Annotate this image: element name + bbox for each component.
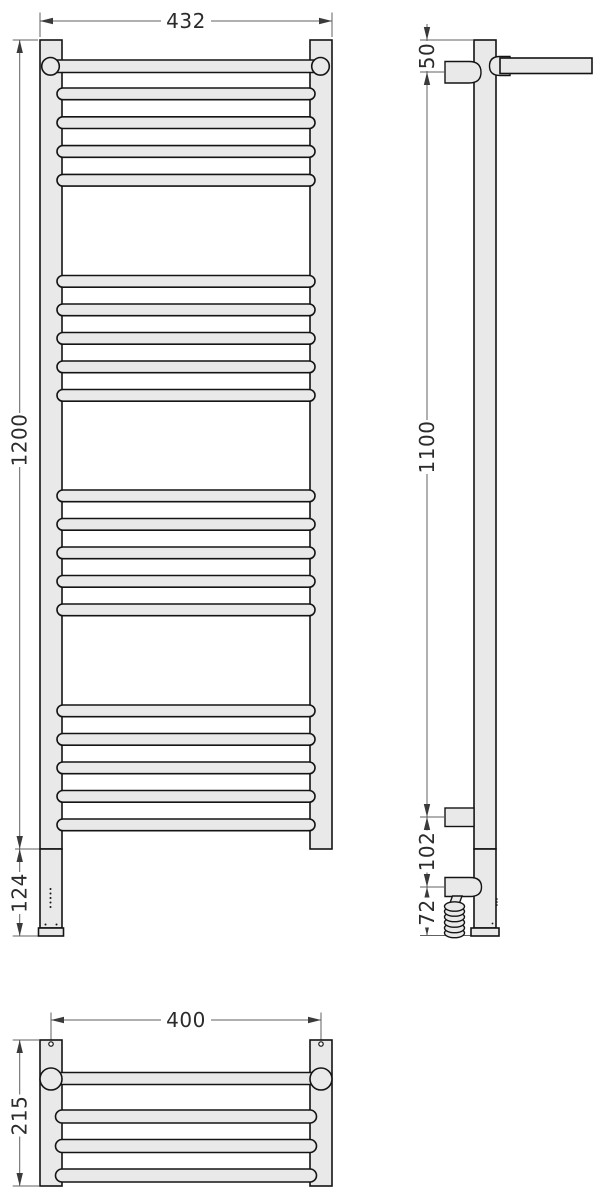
dim-gland-to-bottom: 72 xyxy=(415,898,439,928)
right-post xyxy=(310,40,332,849)
rung xyxy=(56,1140,317,1153)
arrow-up xyxy=(17,849,23,862)
wall-bracket-bottom xyxy=(445,808,474,827)
rung xyxy=(57,88,315,100)
dim-top-offset: 50 xyxy=(415,41,439,71)
arrow-up xyxy=(17,1040,23,1053)
arrow-down xyxy=(17,836,23,849)
rung xyxy=(57,604,315,616)
dimension-lines xyxy=(13,13,473,1187)
rung xyxy=(57,791,315,803)
dim-bracket-span-label: 1100 xyxy=(415,421,439,474)
ball-joint xyxy=(312,58,330,76)
dim-gland-to-bottom-label: 72 xyxy=(415,899,439,925)
shelf-rail xyxy=(51,60,321,73)
arrow-up xyxy=(424,817,430,830)
post-profile xyxy=(474,40,496,849)
rung xyxy=(57,117,315,129)
dim-bracket-span: 1100 xyxy=(415,420,439,474)
rung xyxy=(57,547,315,559)
dim-depth: 215 xyxy=(8,1095,32,1137)
shelf-rail-plan xyxy=(51,1073,321,1085)
wall-bracket-top xyxy=(445,62,481,84)
towel-rail-drawing: 432 1200 124 50 1100 102 72 400 xyxy=(0,0,604,1200)
dim-bracket-to-gland-label: 102 xyxy=(415,832,439,872)
coiled-cable xyxy=(445,902,465,938)
rung xyxy=(57,146,315,158)
rung xyxy=(57,519,315,531)
front-view xyxy=(39,40,333,936)
arrow-up xyxy=(424,72,430,85)
mount-hole xyxy=(49,1042,53,1046)
dim-electric-section-label: 124 xyxy=(8,873,32,913)
rung xyxy=(57,361,315,373)
rung xyxy=(56,1110,317,1123)
arrow-right xyxy=(319,18,332,24)
rung xyxy=(57,819,315,831)
dim-top-offset-label: 50 xyxy=(415,43,439,69)
arrow-left xyxy=(51,1017,64,1023)
rung xyxy=(57,333,315,345)
side-view xyxy=(445,40,593,938)
rung xyxy=(57,576,315,588)
mount-hole xyxy=(319,1042,323,1046)
arrow-down xyxy=(424,804,430,817)
technical-drawing-canvas: 432 1200 124 50 1100 102 72 400 xyxy=(0,0,604,1200)
dim-mount-centers: 400 xyxy=(161,1008,211,1032)
arrow-down-outside xyxy=(424,27,430,40)
rung xyxy=(57,705,315,717)
arrow-right xyxy=(308,1017,321,1023)
dim-electric-section: 124 xyxy=(8,872,32,914)
arrow-down xyxy=(17,923,23,936)
rung xyxy=(57,734,315,746)
rung xyxy=(57,304,315,316)
heating-element-cap xyxy=(39,928,64,936)
dim-depth-label: 215 xyxy=(8,1096,32,1136)
left-post xyxy=(40,40,62,849)
rung xyxy=(57,174,315,186)
ball-joint xyxy=(40,1068,62,1090)
rung xyxy=(56,1169,317,1182)
dim-height: 1200 xyxy=(8,413,32,467)
ball-joint xyxy=(42,58,60,76)
rung xyxy=(57,276,315,288)
dimension-arrows xyxy=(17,18,431,1186)
arrow-up xyxy=(17,40,23,53)
plan-view xyxy=(40,1040,332,1186)
cable-gland xyxy=(445,878,482,897)
dim-mount-centers-label: 400 xyxy=(166,1008,206,1032)
arrow-left xyxy=(40,18,53,24)
shelf-arm xyxy=(500,58,592,74)
dim-bracket-to-gland: 102 xyxy=(415,831,439,873)
ball-joint xyxy=(310,1068,332,1090)
dim-height-label: 1200 xyxy=(8,414,32,467)
dim-width-label: 432 xyxy=(166,9,206,33)
heating-element-cap-side xyxy=(471,928,499,936)
rung xyxy=(57,762,315,774)
arrow-down xyxy=(17,1173,23,1186)
dim-width: 432 xyxy=(161,9,211,33)
arrow-down xyxy=(424,874,430,887)
rung xyxy=(57,490,315,502)
rung xyxy=(57,390,315,402)
